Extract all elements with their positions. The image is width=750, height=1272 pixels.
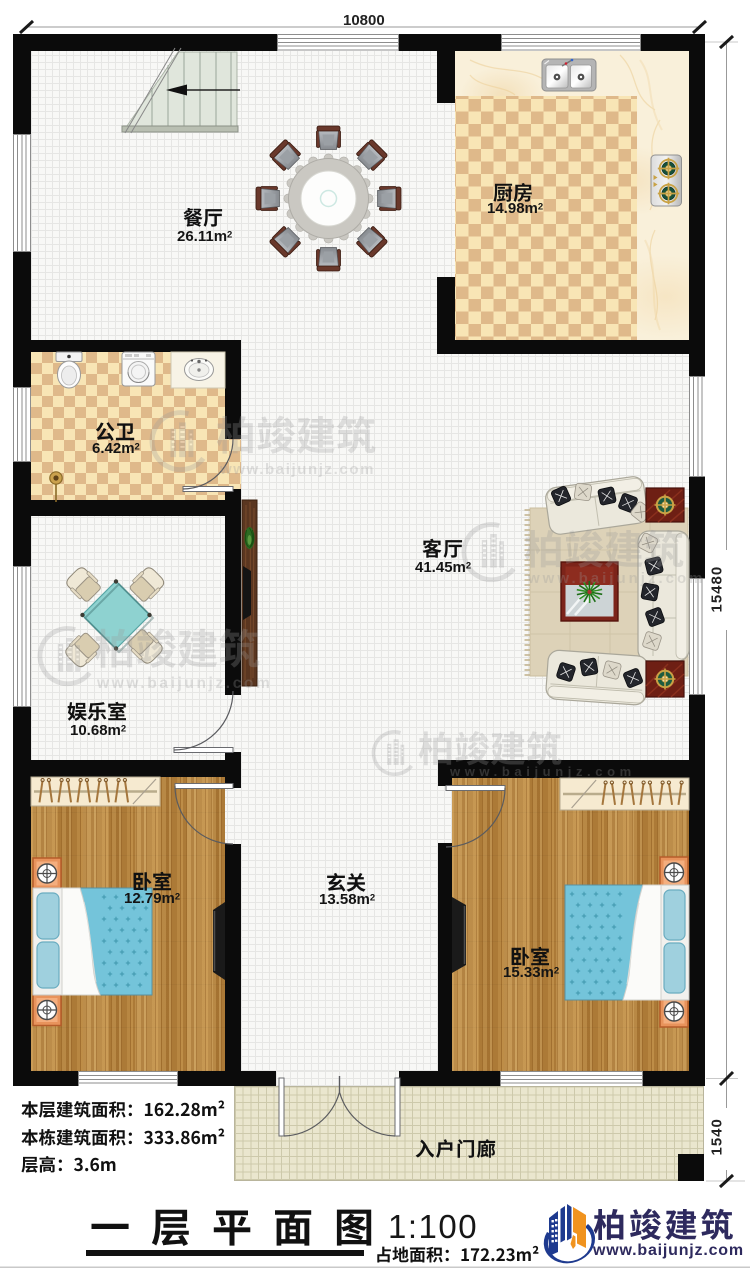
svg-text:www.baijunjz.com: www.baijunjz.com: [592, 1242, 744, 1259]
svg-text:www.baijunjz.com: www.baijunjz.com: [219, 461, 375, 478]
svg-text:www.baijunjz.com: www.baijunjz.com: [527, 570, 705, 587]
svg-text:www.baijunjz.com: www.baijunjz.com: [96, 675, 272, 692]
svg-text:www.baijunjz.com: www.baijunjz.com: [449, 764, 636, 779]
